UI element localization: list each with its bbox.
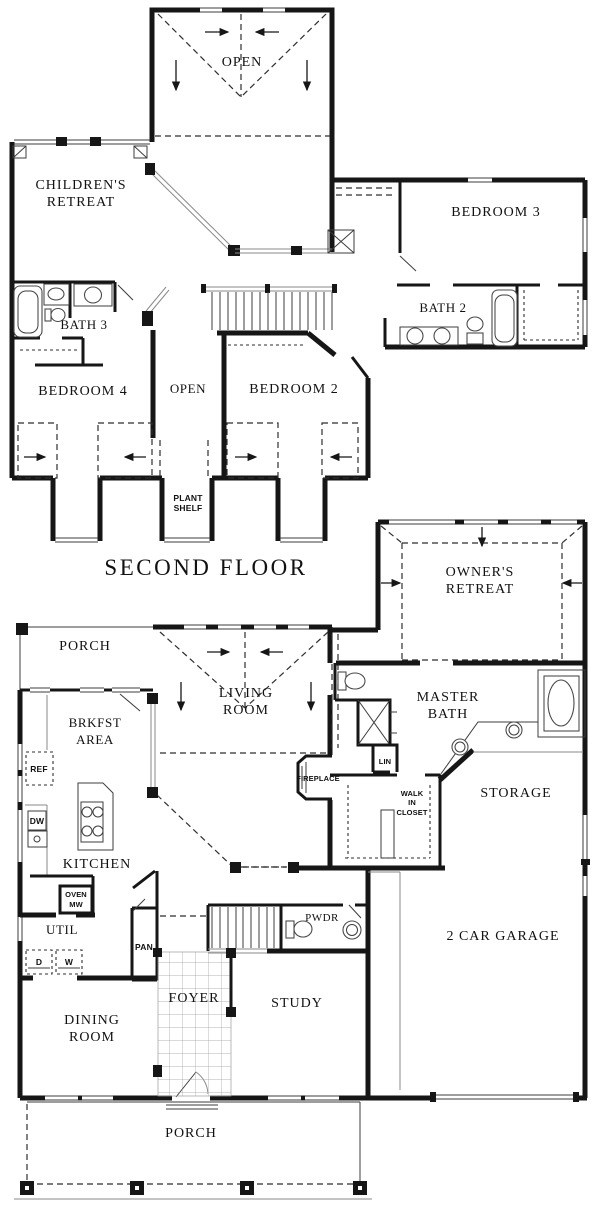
label-owners-2: RETREAT — [446, 582, 514, 597]
label-living-1: LIVING — [219, 686, 273, 701]
open-ceiling-lines — [155, 14, 330, 136]
childrens-retreat-window-wall — [13, 137, 150, 158]
breakfast-living-half-wall — [147, 693, 158, 798]
label-w: W — [65, 957, 74, 967]
porch-column — [130, 1181, 144, 1195]
label-master-1: MASTER — [417, 690, 480, 705]
label-pwdr: PWDR — [305, 912, 339, 924]
label-storage: STORAGE — [480, 786, 551, 801]
label-study: STUDY — [271, 996, 323, 1011]
dormer-spaces — [18, 423, 358, 478]
label-foyer: FOYER — [169, 991, 220, 1006]
label-bedroom2: BEDROOM 2 — [249, 382, 339, 397]
label-mw: MW — [69, 900, 83, 909]
second-floor-plan: OPEN CHILDREN'S RETREAT BEDROOM 3 BATH 3… — [12, 6, 590, 580]
floor-title: SECOND FLOOR — [104, 555, 307, 580]
label-util: UTIL — [46, 922, 78, 937]
label-porch-bottom: PORCH — [165, 1126, 217, 1141]
walk-in-closet — [230, 750, 583, 1090]
label-brkfst-1: BRKFST — [69, 715, 122, 730]
label-dw: DW — [30, 816, 45, 826]
floor-plan-page: OPEN CHILDREN'S RETREAT BEDROOM 3 BATH 3… — [0, 0, 600, 1207]
label-wic-2: IN — [408, 798, 416, 807]
label-oven: OVEN — [65, 890, 87, 899]
label-pan: PAN — [135, 942, 153, 952]
label-wic-1: WALK — [401, 789, 424, 798]
label-bedroom3: BEDROOM 3 — [451, 205, 541, 220]
porch-top — [16, 623, 153, 711]
porch-column — [240, 1181, 254, 1195]
label-plant-shelf-2: SHELF — [174, 503, 203, 513]
label-kitchen: KITCHEN — [63, 857, 131, 872]
label-childrens-1: CHILDREN'S — [35, 178, 126, 193]
label-childrens-2: RETREAT — [47, 195, 115, 210]
porch-column — [353, 1181, 367, 1195]
foyer — [153, 948, 236, 1096]
living-room-ceiling-lines — [157, 632, 330, 867]
open-area-railing — [145, 163, 332, 256]
label-master-2: BATH — [428, 707, 469, 722]
hall-closet — [328, 188, 416, 271]
label-open-upper: OPEN — [222, 55, 263, 70]
label-lin: LIN — [379, 757, 391, 766]
label-living-2: ROOM — [223, 703, 269, 718]
label-open-mid: OPEN — [170, 381, 206, 396]
label-fireplace: FIREPLACE — [296, 774, 339, 783]
label-ref: REF — [30, 764, 48, 774]
label-d: D — [36, 957, 42, 967]
porch-bottom — [14, 1102, 372, 1199]
label-wic-3: CLOSET — [396, 808, 427, 817]
label-dining-2: ROOM — [69, 1030, 115, 1045]
label-bedroom4: BEDROOM 4 — [38, 384, 128, 399]
first-floor-outer-walls — [20, 522, 587, 1098]
label-owners-1: OWNER'S — [446, 565, 515, 580]
label-plant-shelf-1: PLANT — [173, 493, 203, 503]
porch-column — [20, 1181, 34, 1195]
label-bath3: BATH 3 — [60, 317, 107, 332]
floor-plan-drawing: OPEN CHILDREN'S RETREAT BEDROOM 3 BATH 3… — [0, 0, 600, 1207]
label-garage: 2 CAR GARAGE — [446, 929, 559, 944]
label-dining-1: DINING — [64, 1013, 120, 1028]
label-porch-top: PORCH — [59, 639, 111, 654]
label-bath2: BATH 2 — [419, 300, 466, 315]
bath2-fixtures — [400, 290, 578, 346]
first-floor-plan: PORCH LIVING ROOM OWNER'S RETREAT MASTER… — [14, 518, 590, 1199]
label-brkfst-2: AREA — [76, 732, 114, 747]
second-floor-walls — [12, 10, 585, 542]
